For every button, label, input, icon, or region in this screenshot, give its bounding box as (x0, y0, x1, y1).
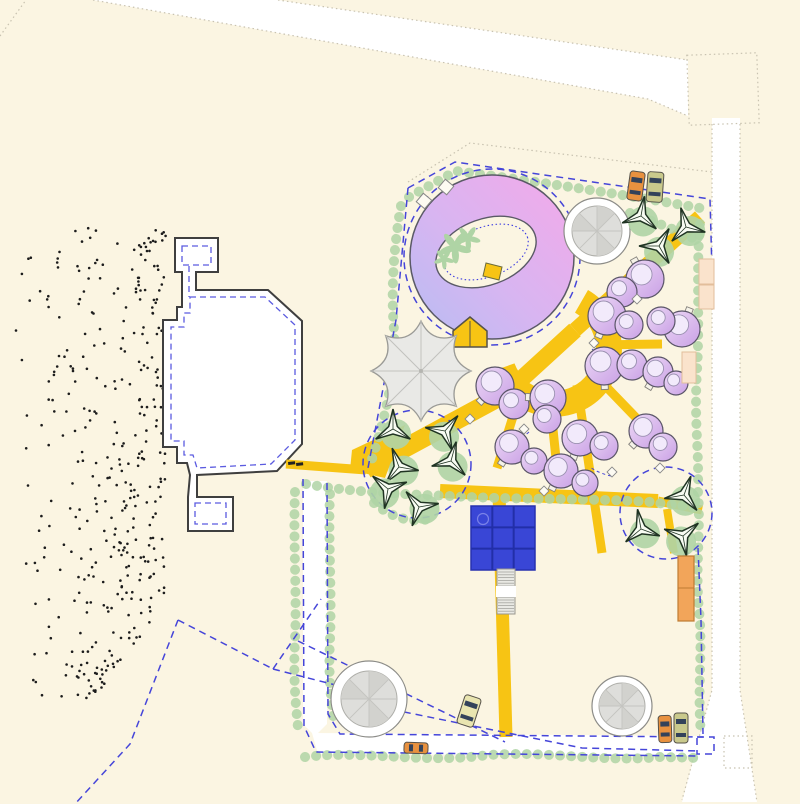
stipple-dot (121, 509, 124, 512)
stipple-dot (159, 478, 162, 481)
stipple-dot (123, 546, 126, 549)
stipple-dot (34, 603, 37, 606)
stipple-dot (139, 635, 142, 638)
pod-skylight-small (576, 473, 589, 486)
stipple-dot (68, 393, 71, 396)
stipple-dot (91, 646, 94, 649)
stipple-dot (53, 371, 56, 374)
stipple-dot (48, 598, 51, 601)
pod-skylight-large (634, 418, 653, 437)
stipple-dot (101, 673, 104, 676)
stipple-dot (127, 614, 130, 617)
pod-skylight-large (567, 424, 587, 444)
stipple-dot (76, 265, 79, 268)
stipple-dot (92, 312, 95, 315)
stipple-dot (157, 486, 160, 489)
stipple-dot (145, 429, 148, 432)
stipple-dot (164, 478, 167, 481)
stipple-dot (133, 332, 136, 335)
stipple-dot (21, 273, 24, 276)
stipple-dot (122, 549, 125, 552)
stipple-dot (152, 516, 155, 519)
car-body (658, 715, 672, 742)
pod-skylight-small (619, 315, 633, 329)
stipple-dot (153, 398, 156, 401)
stipple-dot (58, 316, 61, 319)
stipple-dot (46, 298, 49, 301)
stipple-dot (95, 561, 98, 564)
stipple-dot (154, 512, 157, 515)
hedge-line (294, 492, 298, 728)
stipple-dot (114, 528, 117, 531)
stipple-dot (154, 229, 157, 232)
stipple-dot (96, 510, 99, 513)
stipple-dot (99, 678, 102, 681)
outbuilding (699, 259, 714, 284)
car-rear-window (676, 733, 686, 737)
stipple-dot (74, 430, 77, 433)
stipple-dot (139, 398, 142, 401)
stipple-dot (134, 505, 137, 508)
stipple-dot (161, 232, 164, 235)
stipple-dot (137, 457, 140, 460)
car-windshield (676, 719, 686, 724)
stipple-dot (71, 650, 74, 653)
stipple-dot (152, 312, 155, 315)
stipple-dot (110, 555, 113, 558)
stipple-dot (110, 467, 113, 470)
stipple-dot (77, 303, 80, 306)
stipple-dot (156, 333, 159, 336)
umbrella-layer (371, 321, 471, 421)
stipple-dot (98, 484, 101, 487)
stipple-dot (138, 579, 141, 582)
stipple-dot (146, 367, 149, 370)
stipple-dot (34, 562, 37, 565)
stipple-dot (139, 298, 142, 301)
stipple-dot (58, 251, 61, 254)
stipple-dot (163, 276, 166, 279)
stipple-dot (148, 576, 151, 579)
stipple-dot (82, 355, 85, 358)
stipple-dot (142, 326, 145, 329)
stipple-dot (104, 660, 107, 663)
stipple-dot (79, 298, 82, 301)
stipple-dot (95, 672, 98, 675)
stipple-dot (48, 626, 51, 629)
stipple-dot (106, 456, 109, 459)
stipple-dot (78, 270, 81, 273)
stipple-dot (163, 565, 166, 568)
stipple-dot (30, 256, 33, 259)
stipple-dot (154, 500, 157, 503)
stipple-dot (101, 681, 104, 684)
stipple-dot (116, 660, 119, 663)
stipple-dot (35, 681, 38, 684)
stipple-dot (132, 517, 135, 520)
stipple-dot (154, 302, 157, 305)
stipple-dot (156, 265, 159, 268)
stipple-dot (81, 240, 84, 243)
pod-skylight-small (504, 393, 519, 408)
stipple-dot (92, 575, 95, 578)
stipple-dot (126, 543, 129, 546)
outbuilding (699, 285, 714, 309)
stipple-dot (133, 489, 136, 492)
stipple-dot (110, 607, 113, 610)
stipple-dot (121, 378, 124, 381)
canopy-tree (331, 661, 407, 737)
stipple-dot (151, 306, 154, 309)
stipple-dot (107, 665, 110, 668)
stipple-dot (125, 504, 128, 507)
stipple-dot (153, 547, 156, 550)
stipple-dot (153, 299, 156, 302)
stipple-dot (95, 641, 98, 644)
stipple-dot (163, 592, 166, 595)
stipple-dot (88, 692, 91, 695)
stipple-dot (86, 520, 89, 523)
stipple-dot (108, 650, 111, 653)
stipple-dot (150, 597, 153, 600)
stipple-dot (124, 507, 127, 510)
stipple-dot (103, 604, 106, 607)
stipple-dot (107, 610, 110, 613)
stipple-dot (164, 235, 167, 238)
stipple-dot (114, 387, 117, 390)
car-windshield (409, 744, 413, 751)
car-windshield (649, 178, 661, 184)
stipple-dot (122, 337, 125, 340)
stipple-dot (137, 280, 140, 283)
stipple-dot (129, 497, 132, 500)
stipple-dot (77, 694, 80, 697)
stipple-dot (128, 631, 131, 634)
stipple-dot (125, 566, 128, 569)
stipple-dot (99, 328, 102, 331)
pod-skylight-small (537, 409, 551, 423)
stipple-dot (148, 606, 151, 609)
pod-skylight-small (594, 436, 608, 450)
stipple-dot (149, 610, 152, 613)
stipple-dot (33, 653, 36, 656)
stipple-dot (118, 458, 121, 461)
car (404, 742, 428, 754)
stipple-dot (78, 508, 81, 511)
stipple-dot (114, 421, 117, 424)
stipple-dot (63, 543, 66, 546)
stipple-dot (94, 497, 97, 500)
stipple-dot (158, 289, 161, 292)
stipple-dot (15, 329, 18, 332)
stipple-dot (161, 239, 164, 242)
stipple-dot (88, 267, 91, 270)
stipple-dot (144, 259, 147, 262)
stipple-dot (161, 283, 164, 286)
stipple-dot (103, 342, 106, 345)
stipple-dot (57, 266, 60, 269)
stipple-dot (113, 292, 116, 295)
stipple-dot (38, 529, 41, 532)
stipple-dot (89, 419, 92, 422)
stipple-dot (90, 548, 93, 551)
stipple-dot (96, 377, 99, 380)
stipple-dot (127, 462, 130, 465)
stipple-dot (71, 665, 74, 668)
stipple-dot (70, 550, 73, 553)
pod-skylight-small (653, 437, 667, 451)
stipple-dot (59, 569, 62, 572)
pod-skylight-large (500, 434, 519, 453)
stipple-dot (141, 450, 144, 453)
stipple-dot (121, 470, 124, 473)
stipple-dot (147, 237, 150, 240)
pod-skylight-large (549, 458, 568, 477)
stipple-dot (143, 364, 146, 367)
stipple-dot (78, 670, 81, 673)
pod-skylight-large (631, 264, 652, 285)
stipple-dot (113, 443, 116, 446)
stipple-dot (95, 503, 98, 506)
stipple-dot (65, 674, 68, 677)
stipple-dot (84, 426, 87, 429)
stipple-dot (121, 585, 124, 588)
stipple-dot (100, 686, 103, 689)
stipple-dot (152, 537, 155, 540)
stipple-dot (124, 481, 127, 484)
stipple-dot (69, 365, 72, 368)
car (674, 713, 688, 743)
car-body (674, 713, 688, 743)
stipple-dot (86, 611, 89, 614)
stipple-dot (25, 447, 28, 450)
stipple-dot (149, 537, 152, 540)
stipple-dot (44, 546, 47, 549)
stipple-dot (113, 533, 116, 536)
stipple-dot (119, 463, 122, 466)
stipple-dot (119, 658, 122, 661)
stipple-dot (133, 496, 136, 499)
stipple-dot (119, 579, 122, 582)
stipple-dot (130, 597, 133, 600)
stipple-dot (96, 667, 99, 670)
stipple-dot (66, 349, 69, 352)
stipple-dot (47, 306, 50, 309)
car-rear-window (419, 745, 423, 752)
stipple-dot (135, 538, 138, 541)
stipple-dot (153, 573, 156, 576)
stipple-dot (83, 407, 86, 410)
stipple-dot (112, 631, 115, 634)
stipple-dot (146, 342, 149, 345)
stipple-dot (63, 355, 66, 358)
stipple-dot (56, 257, 59, 260)
stipple-dot (47, 398, 50, 401)
stipple-dot (95, 462, 98, 465)
stipple-dot (72, 367, 75, 370)
stipple-dot (47, 295, 50, 298)
stipple-dot (95, 229, 98, 232)
stipple-dot (86, 368, 89, 371)
stipple-dot (127, 530, 130, 533)
stipple-dot (106, 477, 109, 480)
stipple-dot (112, 663, 115, 666)
stipple-dot (36, 569, 39, 572)
car (646, 171, 664, 202)
stipple-dot (102, 263, 105, 266)
stipple-dot (41, 694, 44, 697)
stipple-dot (77, 576, 80, 579)
car (658, 715, 672, 742)
stipple-dot (56, 365, 59, 368)
stipple-dot (139, 573, 142, 576)
site-plan (0, 0, 800, 804)
stipple-dot (163, 586, 166, 589)
stipple-dot (27, 484, 30, 487)
stipple-dot (87, 650, 90, 653)
stipple-dot (93, 410, 96, 413)
stipple-dot (116, 432, 119, 435)
stipple-dot (89, 237, 92, 240)
stipple-dot (65, 410, 68, 413)
stipple-dot (125, 591, 128, 594)
stipple-dot (138, 452, 141, 455)
stipple-dot (93, 689, 96, 692)
stipple-dot (47, 444, 50, 447)
stipple-dot (120, 554, 123, 557)
stipple-dot (117, 287, 120, 290)
stipple-dot (116, 593, 119, 596)
stipple-dot (48, 525, 51, 528)
stipple-dot (113, 666, 116, 669)
stipple-dot (135, 636, 138, 639)
stipple-dot (40, 515, 43, 518)
stipple-dot (144, 560, 147, 563)
stipple-dot (82, 650, 85, 653)
stipple-dot (131, 268, 134, 271)
car-body (404, 742, 428, 754)
pod-skylight-large (481, 371, 502, 392)
stipple-dot (106, 606, 109, 609)
stipple-dot (148, 544, 151, 547)
stipple-dot (104, 385, 107, 388)
stipple-dot (156, 368, 159, 371)
car-rear-window (648, 192, 660, 197)
stipple-dot (25, 562, 28, 565)
stipple-dot (86, 662, 89, 665)
pod-skylight-large (647, 360, 664, 377)
stipple-dot (141, 333, 144, 336)
stipple-dot (124, 350, 127, 353)
stipple-dot (148, 250, 151, 253)
stipple-dot (83, 578, 86, 581)
stipple-dot (145, 440, 148, 443)
stipple-dot (87, 227, 90, 230)
stipple-dot (88, 410, 91, 413)
stipple-dot (123, 500, 126, 503)
stipple-dot (118, 549, 121, 552)
stipple-dot (93, 344, 96, 347)
stipple-dot (103, 530, 106, 533)
stipple-dot (53, 374, 56, 377)
stipple-dot (72, 370, 75, 373)
stipple-dot (156, 376, 159, 379)
site-plan-svg (0, 0, 800, 804)
stipple-dot (78, 592, 81, 595)
stipple-dot (147, 560, 150, 563)
stipple-dot (130, 490, 133, 493)
stipple-dot (73, 599, 76, 602)
stipple-dot (152, 240, 155, 243)
stipple-dot (81, 451, 84, 454)
stipple-dot (92, 475, 95, 478)
stipple-dot (26, 414, 29, 417)
stipple-dot (120, 637, 123, 640)
stipple-dot (27, 257, 30, 260)
stipple-dot (116, 242, 119, 245)
stipple-dot (140, 246, 143, 249)
stipple-dot (128, 637, 131, 640)
stipple-dot (126, 551, 129, 554)
stipple-dot (137, 284, 140, 287)
stipple-dot (142, 556, 145, 559)
stipple-dot (154, 406, 157, 409)
pod-skylight-small (525, 451, 538, 464)
stipple-dot (129, 483, 132, 486)
pod-skylight-large (593, 301, 614, 322)
stipple-dot (99, 277, 102, 280)
car-rear-window (661, 732, 670, 736)
stipple-dot (122, 320, 125, 323)
stipple-dot (132, 642, 135, 645)
stipple-dot (85, 697, 88, 700)
stipple-dot (87, 277, 90, 280)
stipple-dot (140, 598, 143, 601)
stipple-dot (84, 333, 87, 336)
stipple-dot (74, 230, 77, 233)
stipple-dot (138, 361, 141, 364)
car-body (646, 171, 664, 202)
stipple-dot (146, 501, 149, 504)
stipple-dot (129, 383, 132, 386)
stipple-dot (121, 445, 124, 448)
stipple-dot (78, 527, 81, 530)
stipple-dot (91, 566, 94, 569)
stair-landing (496, 586, 516, 597)
stipple-dot (83, 290, 86, 293)
stipple-dot (153, 265, 156, 268)
canopy-tree (564, 198, 630, 264)
stipple-dot (56, 261, 59, 264)
stipple-dot (155, 371, 158, 374)
pod-skylight-small (622, 354, 637, 369)
stipple-dot (80, 557, 83, 560)
stipple-dot (71, 482, 74, 485)
stipple-dot (156, 298, 159, 301)
stipple-dot (39, 290, 42, 293)
stipple-dot (132, 556, 135, 559)
stipple-dot (132, 526, 135, 529)
stipple-dot (156, 384, 159, 387)
canopy-tree (592, 676, 652, 736)
stipple-dot (62, 434, 65, 437)
stipple-dot (115, 484, 118, 487)
stipple-dot (110, 517, 113, 520)
stipple-dot (79, 632, 82, 635)
stipple-dot (140, 556, 143, 559)
parasol-pole (419, 369, 423, 373)
stipple-dot (146, 406, 149, 409)
